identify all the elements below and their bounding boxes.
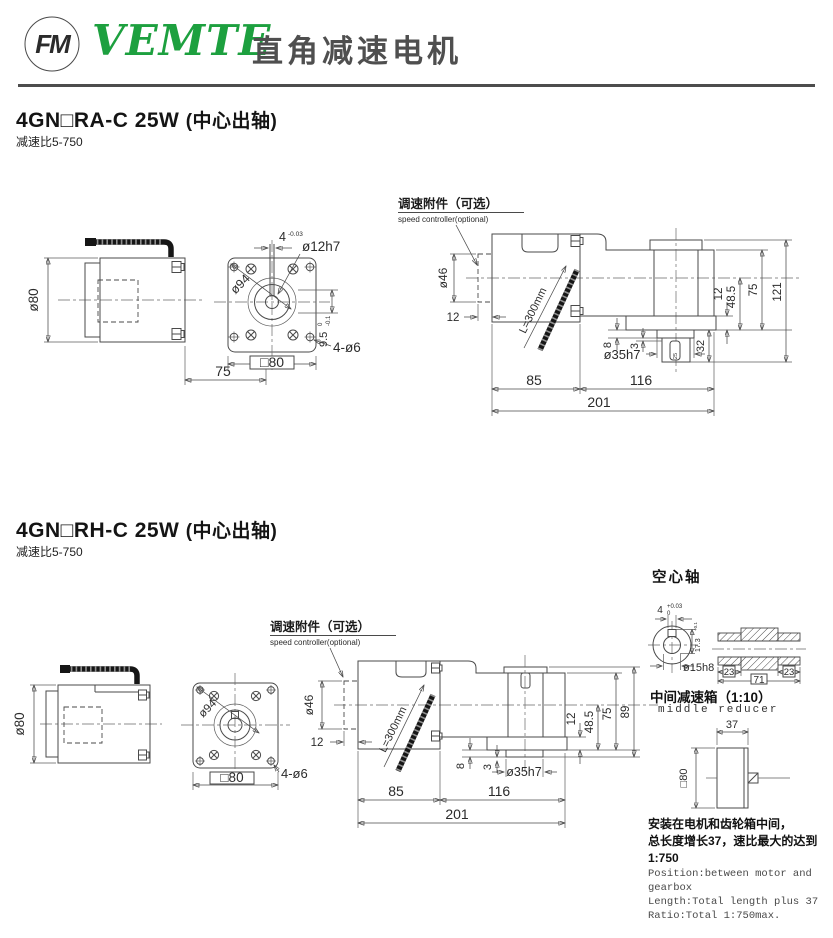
dim-key-tol: -0.03 — [288, 231, 303, 238]
dim-boss-tol-hi: 0 — [318, 322, 324, 326]
dim-hollow-key-depth: 17.3 — [695, 638, 702, 652]
drawing-ra-c: ø80 75 ø94 4 — [0, 190, 833, 430]
rh-assembly-view: 调速附件（可选） speed controller(optional) ø46 … — [270, 619, 658, 828]
dim-ctrl-width: 12 — [311, 737, 324, 749]
note-en-2: Length:Total length plus 37 — [648, 895, 832, 909]
dim-ctrl-width: 12 — [447, 312, 460, 324]
middle-reducer-title-cn: 中间减速箱（1:10） — [650, 686, 772, 706]
dim-corner-holes: 4-ø6 — [333, 340, 361, 355]
dim-ctrl-dia: ø46 — [302, 694, 316, 715]
dim-hollow-key-width: 4 — [657, 605, 663, 616]
dim-hollow-key-tol-lo: 0 — [667, 611, 671, 617]
product-name: 直角减速电机 — [252, 26, 462, 71]
rh-front-view: ø94 4-ø6 □80 — [181, 673, 308, 790]
dim-flange-square: □80 — [220, 770, 243, 785]
dim-flange-thickness: 12 — [713, 288, 725, 301]
dim-output-dia: ø35h7 — [506, 765, 541, 779]
middle-reducer-body: 37 □80 — [678, 719, 790, 808]
section2-ratio: 减速比5-750 — [16, 543, 83, 560]
dim-ctrl-dia: ø46 — [436, 267, 450, 288]
rh-side-view: ø80 — [12, 665, 162, 763]
hollow-shaft-end-view: 4 +0.03 0 17.3 +0.1 ø15h8 — [648, 604, 714, 674]
section2-shaft-note: (中心出轴) — [186, 521, 278, 542]
note-cn-1: 安装在电机和齿轮箱中间， — [648, 816, 832, 833]
hollow-shaft-title: 空心轴 — [652, 566, 702, 587]
dim-total-height: 121 — [772, 282, 784, 301]
datasheet-page: FM VEMTE 直角减速电机 4GN□RA-C 25W (中心出轴) 减速比5… — [0, 0, 833, 938]
dim-hollow-end-a: 23 — [724, 667, 735, 678]
section1-model: 4GN□RA-C 25W — [16, 109, 179, 132]
dim-axis-height: 48.5 — [584, 711, 596, 733]
section2-model: 4GN□RH-C 25W — [16, 519, 179, 542]
dim-motor-section: 85 — [526, 372, 542, 388]
header-divider — [18, 84, 815, 87]
speed-controller-label-en: speed controller(optional) — [270, 638, 361, 647]
ra-front-view: ø94 4 -0.03 ø12h7 9.5 0 -0.1 4-ø6 □80 — [214, 230, 361, 370]
dim-flange-square: □80 — [260, 354, 284, 370]
dim-box-section: 116 — [488, 783, 511, 799]
hollow-shaft-section-view: 23 23 71 — [712, 628, 806, 686]
logo-mark: FM — [35, 29, 72, 59]
dim-bolt-circle: ø94 — [228, 272, 253, 297]
dim-bolt-circle: ø94 — [197, 697, 220, 720]
ra-assembly-view: 调速附件（可选） speed controller(optional) ø46 … — [398, 196, 800, 416]
dim-output-dia: ø35h7 — [604, 347, 641, 362]
dim-box-height: 75 — [748, 284, 760, 297]
speed-controller-label-cn: 调速附件（可选） — [398, 196, 498, 211]
dim-hollow-key-depth-tol: +0.1 — [693, 622, 698, 631]
dim-boss-tol-lo: -0.1 — [326, 315, 332, 326]
section1-ratio: 减速比5-750 — [16, 133, 83, 150]
reducer-notes: 安装在电机和齿轮箱中间， 总长度增长37，速比最大的达到1:750 Positi… — [648, 816, 832, 923]
speed-controller-label-en: speed controller(optional) — [398, 215, 489, 224]
dim-motor-length: 75 — [215, 363, 231, 379]
dim-total-length: 201 — [445, 806, 469, 822]
dim-flange-thickness: 12 — [566, 713, 578, 726]
dim-key-length: 25 — [673, 353, 679, 359]
dim-axis-height: 48.5 — [726, 286, 738, 308]
dim-reducer-width: 37 — [726, 719, 738, 731]
section1-title: 4GN□RA-C 25W (中心出轴) — [16, 106, 277, 133]
dim-shaft-dia: ø12h7 — [302, 239, 340, 254]
note-en-3: Ratio:Total 1:750max. — [648, 909, 832, 923]
dim-corner-holes: 4-ø6 — [281, 766, 308, 781]
brand-logo-icon: FM — [20, 12, 84, 76]
hollow-shaft-drawing: 4 +0.03 0 17.3 +0.1 ø15h8 — [640, 600, 833, 692]
dim-box-section: 116 — [630, 372, 653, 388]
dim-box-height: 75 — [602, 708, 614, 721]
section1-shaft-note: (中心出轴) — [186, 111, 278, 132]
section2-title: 4GN□RH-C 25W (中心出轴) — [16, 516, 277, 543]
middle-reducer-drawing: 37 □80 — [640, 715, 833, 815]
dim-cable-length: L=300mm — [377, 705, 409, 755]
dim-motor-dia: ø80 — [12, 712, 27, 735]
dim-motor-section: 85 — [388, 783, 404, 799]
dim-hollow-end-b: 23 — [784, 667, 795, 678]
dim-gap8: 8 — [455, 763, 467, 769]
dim-total-height: 89 — [620, 706, 632, 719]
dim-gap3: 3 — [482, 764, 494, 770]
dim-reducer-frame: □80 — [678, 769, 690, 788]
dim-cable-length: L=300mm — [517, 286, 549, 336]
dim-hollow-length: 71 — [753, 675, 765, 686]
dim-key-width: 4 — [279, 230, 286, 244]
speed-controller-label-cn: 调速附件（可选） — [270, 619, 370, 634]
dim-hollow-key-tol-hi: +0.03 — [667, 604, 683, 610]
dim-total-length: 201 — [587, 394, 611, 410]
dim-hollow-bore: ø15h8 — [683, 662, 714, 674]
note-en-1: Position:between motor and gearbox — [648, 867, 832, 895]
brand-name: VEMTE — [92, 16, 271, 65]
note-cn-2: 总长度增长37，速比最大的达到1:750 — [648, 833, 832, 867]
dim-shaft-protrusion: 32 — [695, 340, 707, 352]
dim-motor-dia: ø80 — [26, 288, 41, 311]
